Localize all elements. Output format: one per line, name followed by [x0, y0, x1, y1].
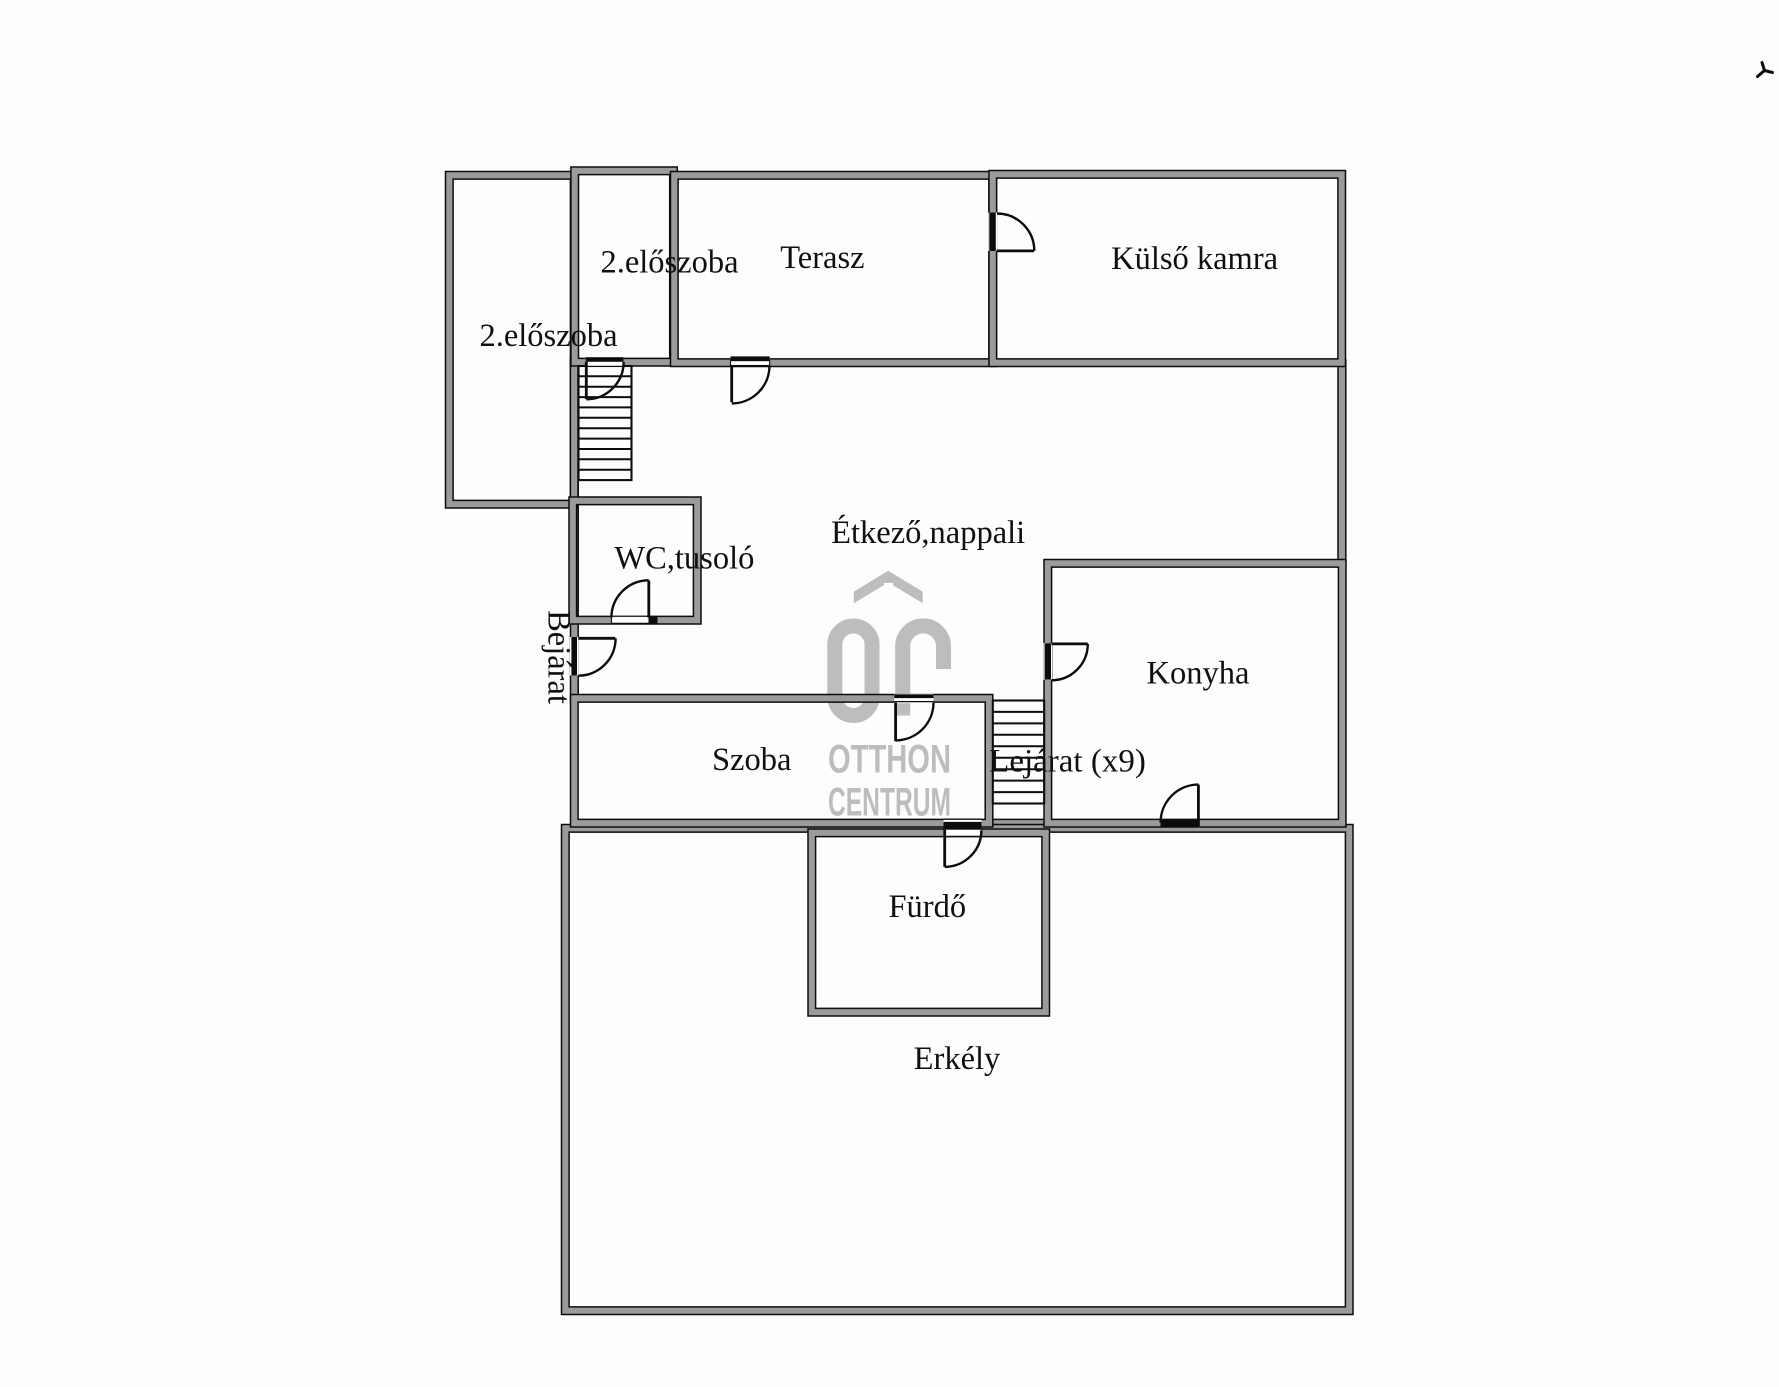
svg-text:Konyha: Konyha — [1147, 656, 1250, 692]
svg-text:OTTHON: OTTHON — [828, 738, 951, 782]
svg-text:Szoba: Szoba — [712, 742, 791, 778]
svg-text:Bejárat: Bejárat — [541, 610, 577, 704]
svg-text:Fürdő: Fürdő — [888, 889, 966, 925]
svg-text:Külső kamra: Külső kamra — [1111, 241, 1278, 277]
svg-text:Étkező,nappali: Étkező,nappali — [831, 515, 1025, 551]
svg-text:Terasz: Terasz — [780, 240, 864, 276]
svg-text:CENTRUM: CENTRUM — [828, 781, 951, 825]
svg-text:2.előszoba: 2.előszoba — [600, 245, 738, 281]
svg-text:WC,tusoló: WC,tusoló — [614, 541, 754, 577]
svg-text:Lejárat (x9): Lejárat (x9) — [989, 744, 1146, 780]
svg-text:Erkély: Erkély — [914, 1041, 1001, 1077]
svg-text:2.előszoba: 2.előszoba — [479, 318, 617, 354]
